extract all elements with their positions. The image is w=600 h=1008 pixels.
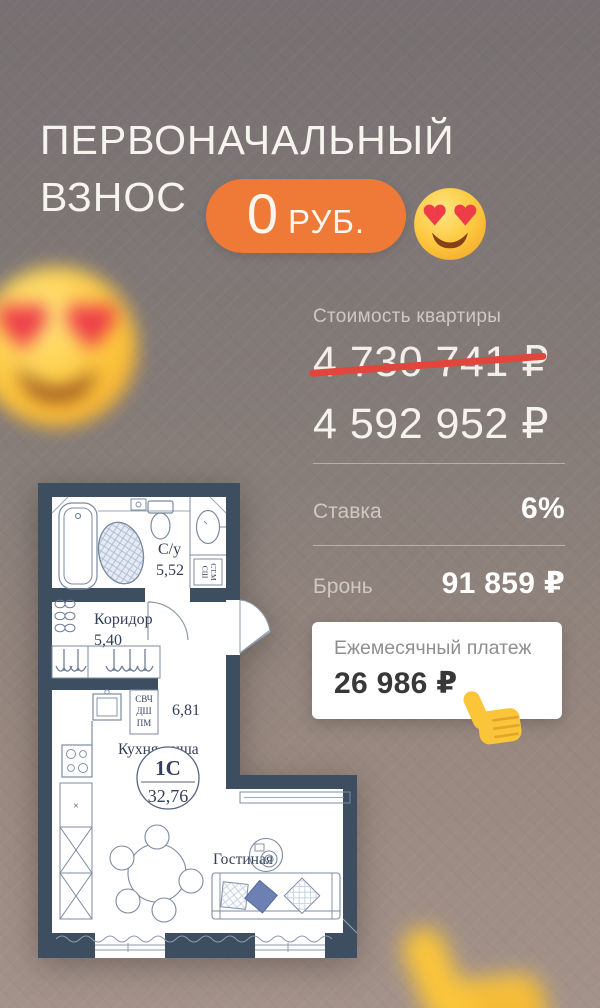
sofa-icon <box>212 873 340 919</box>
promo-banner: ПЕРВОНАЧАЛЬНЫЙ ВЗНОС 0 РУБ. Стоимость <box>0 0 600 1008</box>
floor-plan: С/у 5,52 СТ.М СШ Коридор 5,40 <box>38 483 359 958</box>
divider <box>313 463 565 464</box>
price-block: Стоимость квартиры 4 730 741 ₽ 4 592 952… <box>313 306 567 449</box>
corridor-label: Коридор <box>94 611 153 628</box>
zero-payment-badge: 0 РУБ. <box>206 179 406 253</box>
new-price: 4 592 952 ₽ <box>313 399 567 449</box>
heart-eyes-emoji <box>412 186 488 262</box>
thumbs-up-icon <box>380 876 600 1008</box>
cost-label: Стоимость квартиры <box>313 306 567 328</box>
floor-plan-drawing: С/у 5,52 СТ.М СШ Коридор 5,40 <box>38 483 359 958</box>
monthly-payment-label: Ежемесячный платеж <box>334 637 562 660</box>
unit-type: 1С <box>155 756 181 780</box>
title-line-1: ПЕРВОНАЧАЛЬНЫЙ <box>40 112 455 169</box>
appliance-2: ДШ <box>136 706 151 716</box>
bathroom-label: С/у <box>158 541 181 558</box>
unit-area-stamp: 1С 32,76 <box>137 747 199 809</box>
total-area: 32,76 <box>148 786 189 806</box>
kitchen-area: 6,81 <box>172 702 200 719</box>
cabinet-mark: × <box>73 801 79 812</box>
old-price: 4 730 741 ₽ <box>313 337 567 387</box>
thumbs-up-emoji <box>454 669 544 759</box>
heart-eyes-icon <box>412 186 488 262</box>
rate-value: 6% <box>521 492 565 526</box>
heart-eyes-icon <box>0 262 142 432</box>
svg-text:СШ: СШ <box>201 566 210 579</box>
thumbs-up-emoji-blurred <box>380 876 600 1008</box>
badge-currency: РУБ. <box>288 205 365 238</box>
appliance-3: ПМ <box>137 718 152 728</box>
booking-value: 91 859 ₽ <box>442 566 565 601</box>
bathroom-area: 5,52 <box>156 562 184 579</box>
thumbs-up-icon <box>454 669 544 759</box>
badge-amount: 0 <box>247 186 278 242</box>
heart-eyes-emoji-blurred <box>0 262 142 432</box>
appliance-1: СВЧ <box>135 694 153 704</box>
